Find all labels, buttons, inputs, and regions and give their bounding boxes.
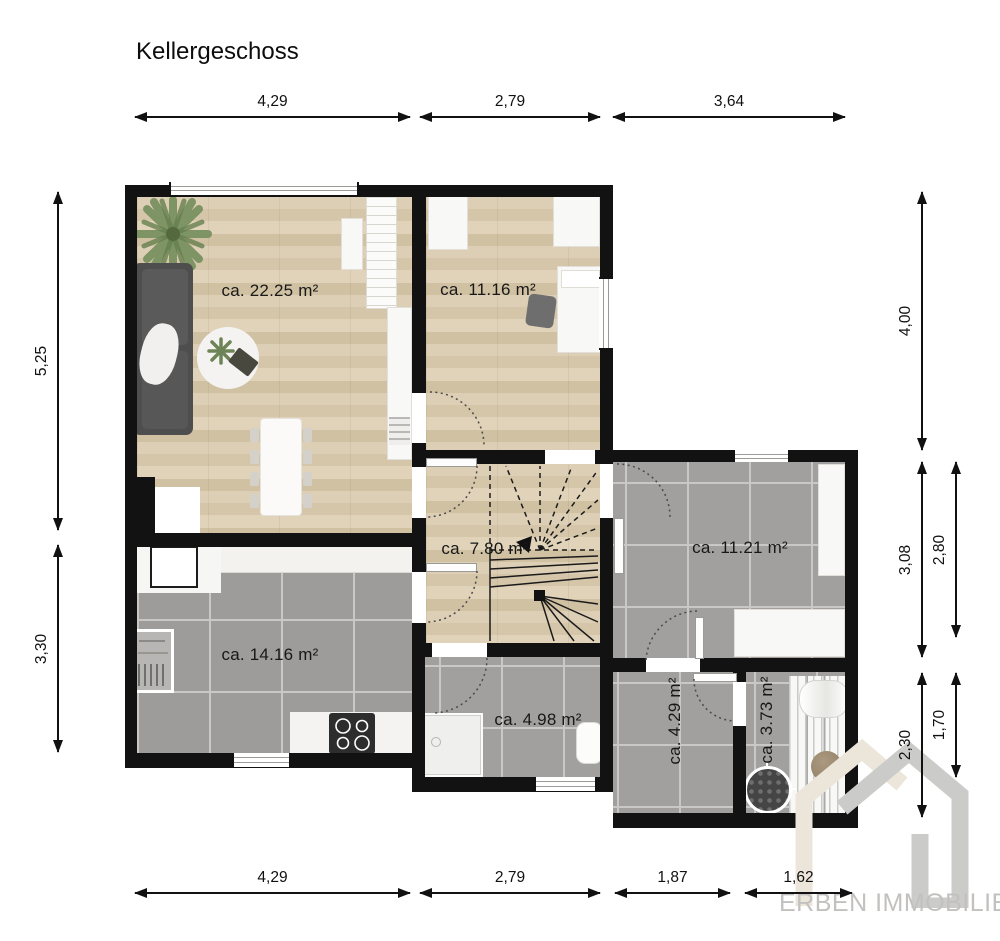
plan-title: Kellergeschoss (136, 38, 299, 66)
wall (600, 350, 613, 464)
dimension-left-2: 3,30 (57, 545, 59, 752)
wall (487, 643, 613, 657)
dimension-left-1: 5,25 (57, 192, 59, 530)
bed (557, 266, 602, 353)
wall (600, 185, 613, 277)
wall (600, 518, 613, 643)
chimney (125, 477, 155, 535)
paper-stack (389, 417, 410, 445)
door-opening (412, 393, 426, 443)
dimension-bottom-2: 2,79 (420, 892, 600, 894)
room-area-label: ca. 4.98 m² (494, 710, 581, 730)
room-area-label: ca. 11.16 m² (440, 280, 536, 300)
door-leaf (426, 563, 477, 572)
radiator-sink (132, 629, 174, 693)
door-leaf (614, 518, 624, 574)
watermark-logo (790, 738, 975, 908)
wall (412, 443, 426, 467)
wardrobe (428, 196, 468, 250)
door-opening (412, 467, 426, 518)
window (599, 277, 613, 350)
dimension-bottom-1: 4,29 (135, 892, 410, 894)
room-area-label: ca. 22.25 m² (222, 281, 319, 301)
wardrobe-2 (553, 196, 600, 247)
dimension-right-outer-2: 1,70 (955, 673, 957, 777)
bed-pillow (561, 270, 600, 288)
wall (700, 658, 858, 672)
door-opening (600, 464, 613, 518)
door-opening (432, 643, 487, 657)
floor-plan: Kellergeschoss (0, 0, 1000, 941)
wall (412, 657, 425, 792)
dimension-bottom-4: 1,62 (745, 892, 852, 894)
window (733, 450, 790, 462)
wall (412, 643, 432, 657)
door-opening (733, 682, 746, 726)
door-leaf (693, 673, 737, 682)
boiler (799, 680, 849, 718)
dimension-right-2: 3,08 (921, 462, 923, 657)
door-opening (646, 658, 700, 672)
dining-table (250, 418, 312, 516)
floor-drain (744, 766, 792, 814)
bookshelf (366, 197, 397, 309)
room-area-label: ca. 14.16 m² (222, 645, 319, 665)
room-area-label: ca. 11.21 m² (692, 538, 788, 558)
door-leaf (426, 458, 477, 467)
sofa (133, 263, 193, 435)
wall (613, 658, 646, 672)
room-area-label: ca. 4.29 m² (665, 677, 685, 764)
cooktop (329, 713, 375, 754)
room-area-label: ca. 3.73 m² (757, 676, 777, 763)
door-opening (412, 572, 426, 623)
wall (125, 533, 412, 547)
shower-drain (431, 737, 441, 747)
window (534, 777, 597, 791)
window (169, 182, 359, 195)
dimension-bottom-3: 1,87 (615, 892, 730, 894)
wall (733, 726, 746, 813)
dimension-top-2: 2,79 (420, 116, 600, 118)
shelf-right (818, 464, 845, 576)
dimension-right-outer-1: 2,80 (955, 462, 957, 637)
room-area-label: ca. 7.80 m² (441, 539, 528, 559)
dimension-right-3: 2,30 (921, 673, 923, 817)
side-cabinet (341, 218, 363, 270)
chimney-alcove (155, 487, 200, 533)
dimension-top-1: 4,29 (135, 116, 410, 118)
freezer-box (135, 541, 221, 593)
door-leaf (695, 617, 704, 659)
dimension-right-1: 4,00 (921, 192, 923, 450)
wall (412, 185, 426, 393)
window (232, 753, 291, 767)
shower (421, 713, 483, 777)
counter-bottom (734, 609, 845, 657)
dimension-top-3: 3,64 (613, 116, 845, 118)
wall (600, 643, 613, 792)
wall (412, 518, 426, 572)
